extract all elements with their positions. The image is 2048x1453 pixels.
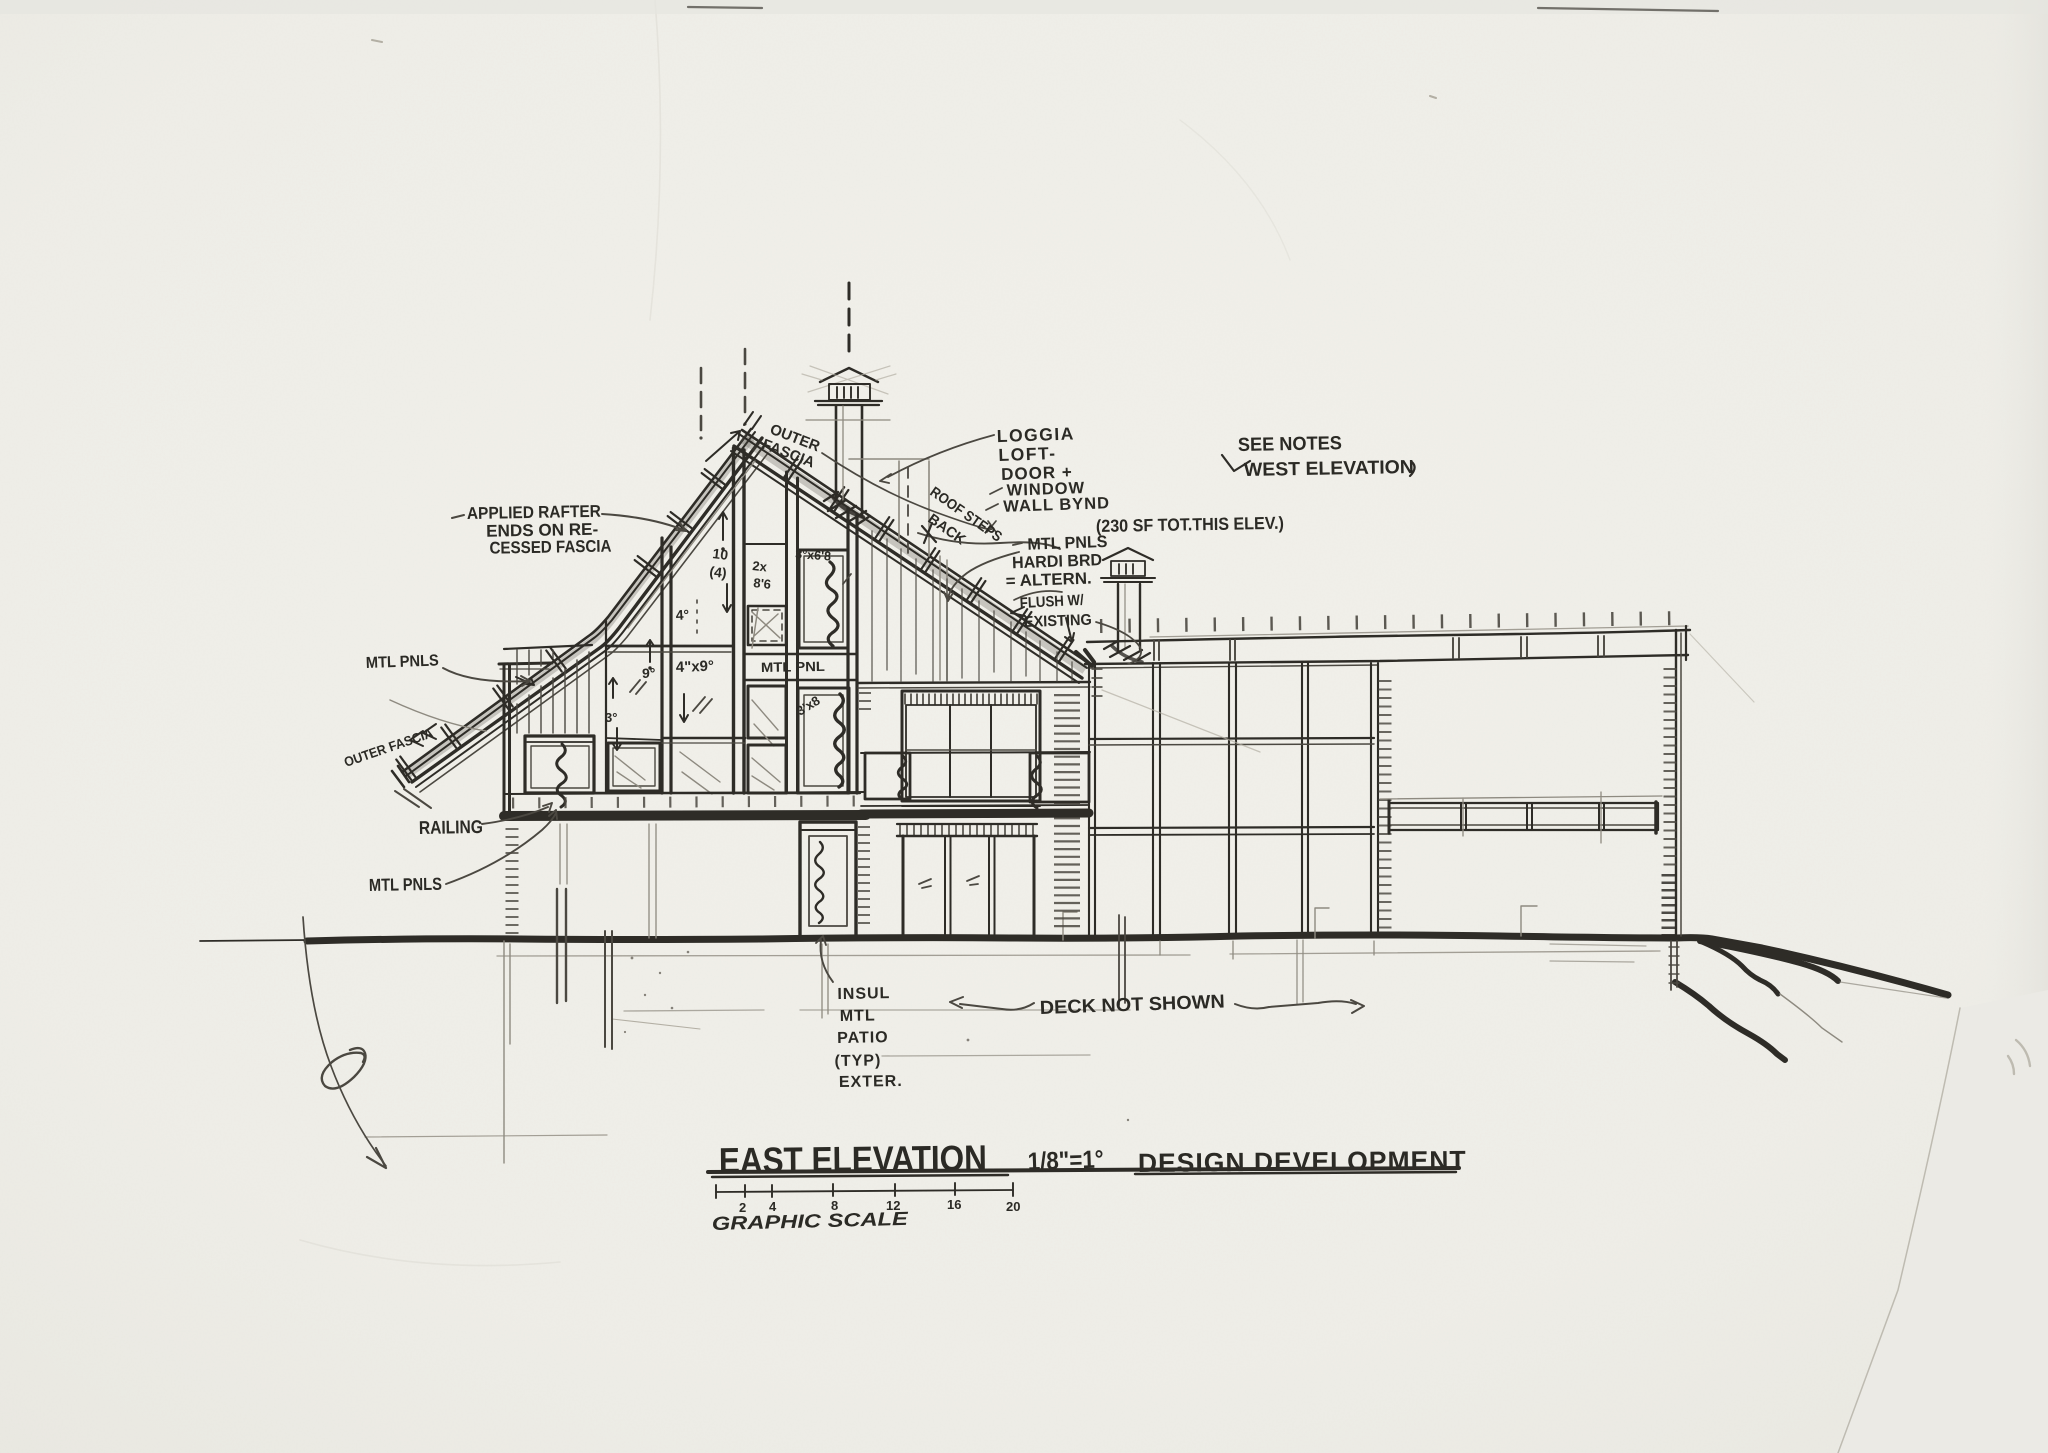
svg-text:MTL PNLS: MTL PNLS xyxy=(369,874,442,895)
svg-text:EXISTING: EXISTING xyxy=(1024,612,1093,631)
svg-text:3°: 3° xyxy=(605,710,617,725)
svg-text:16: 16 xyxy=(947,1197,961,1212)
svg-text:LOGGIA: LOGGIA xyxy=(996,423,1075,446)
svg-text:SEE NOTES: SEE NOTES xyxy=(1238,433,1342,456)
svg-text:PATIO: PATIO xyxy=(837,1029,889,1047)
svg-text:WALL BYND: WALL BYND xyxy=(1003,494,1110,516)
svg-text:(230 SF TOT.THIS ELEV.): (230 SF TOT.THIS ELEV.) xyxy=(1096,513,1284,536)
svg-text:EXTER.: EXTER. xyxy=(839,1073,903,1091)
svg-text:9°: 9° xyxy=(642,665,655,681)
svg-text:RAILING: RAILING xyxy=(419,816,483,838)
svg-text:4"x9°: 4"x9° xyxy=(676,658,715,676)
svg-text:8'6: 8'6 xyxy=(753,575,772,592)
svg-text:10: 10 xyxy=(712,545,730,563)
svg-text:MTL PNL: MTL PNL xyxy=(761,659,825,675)
svg-text:CESSED FASCIA: CESSED FASCIA xyxy=(489,537,611,558)
svg-text:(TYP): (TYP) xyxy=(834,1052,881,1070)
svg-text:4°: 4° xyxy=(675,606,689,623)
svg-text:(4): (4) xyxy=(709,563,728,581)
svg-text:WEST ELEVATION: WEST ELEVATION xyxy=(1244,457,1414,481)
svg-text:MTL PNLS: MTL PNLS xyxy=(366,652,440,672)
svg-text:LOFT-: LOFT- xyxy=(998,443,1057,465)
svg-text:= ALTERN.: = ALTERN. xyxy=(1005,570,1092,591)
svg-text:2x: 2x xyxy=(752,558,769,575)
svg-text:3°x6'8: 3°x6'8 xyxy=(795,547,832,563)
svg-text:INSUL: INSUL xyxy=(837,985,890,1003)
svg-text:20: 20 xyxy=(1006,1199,1020,1214)
svg-text:MTL: MTL xyxy=(840,1007,876,1025)
